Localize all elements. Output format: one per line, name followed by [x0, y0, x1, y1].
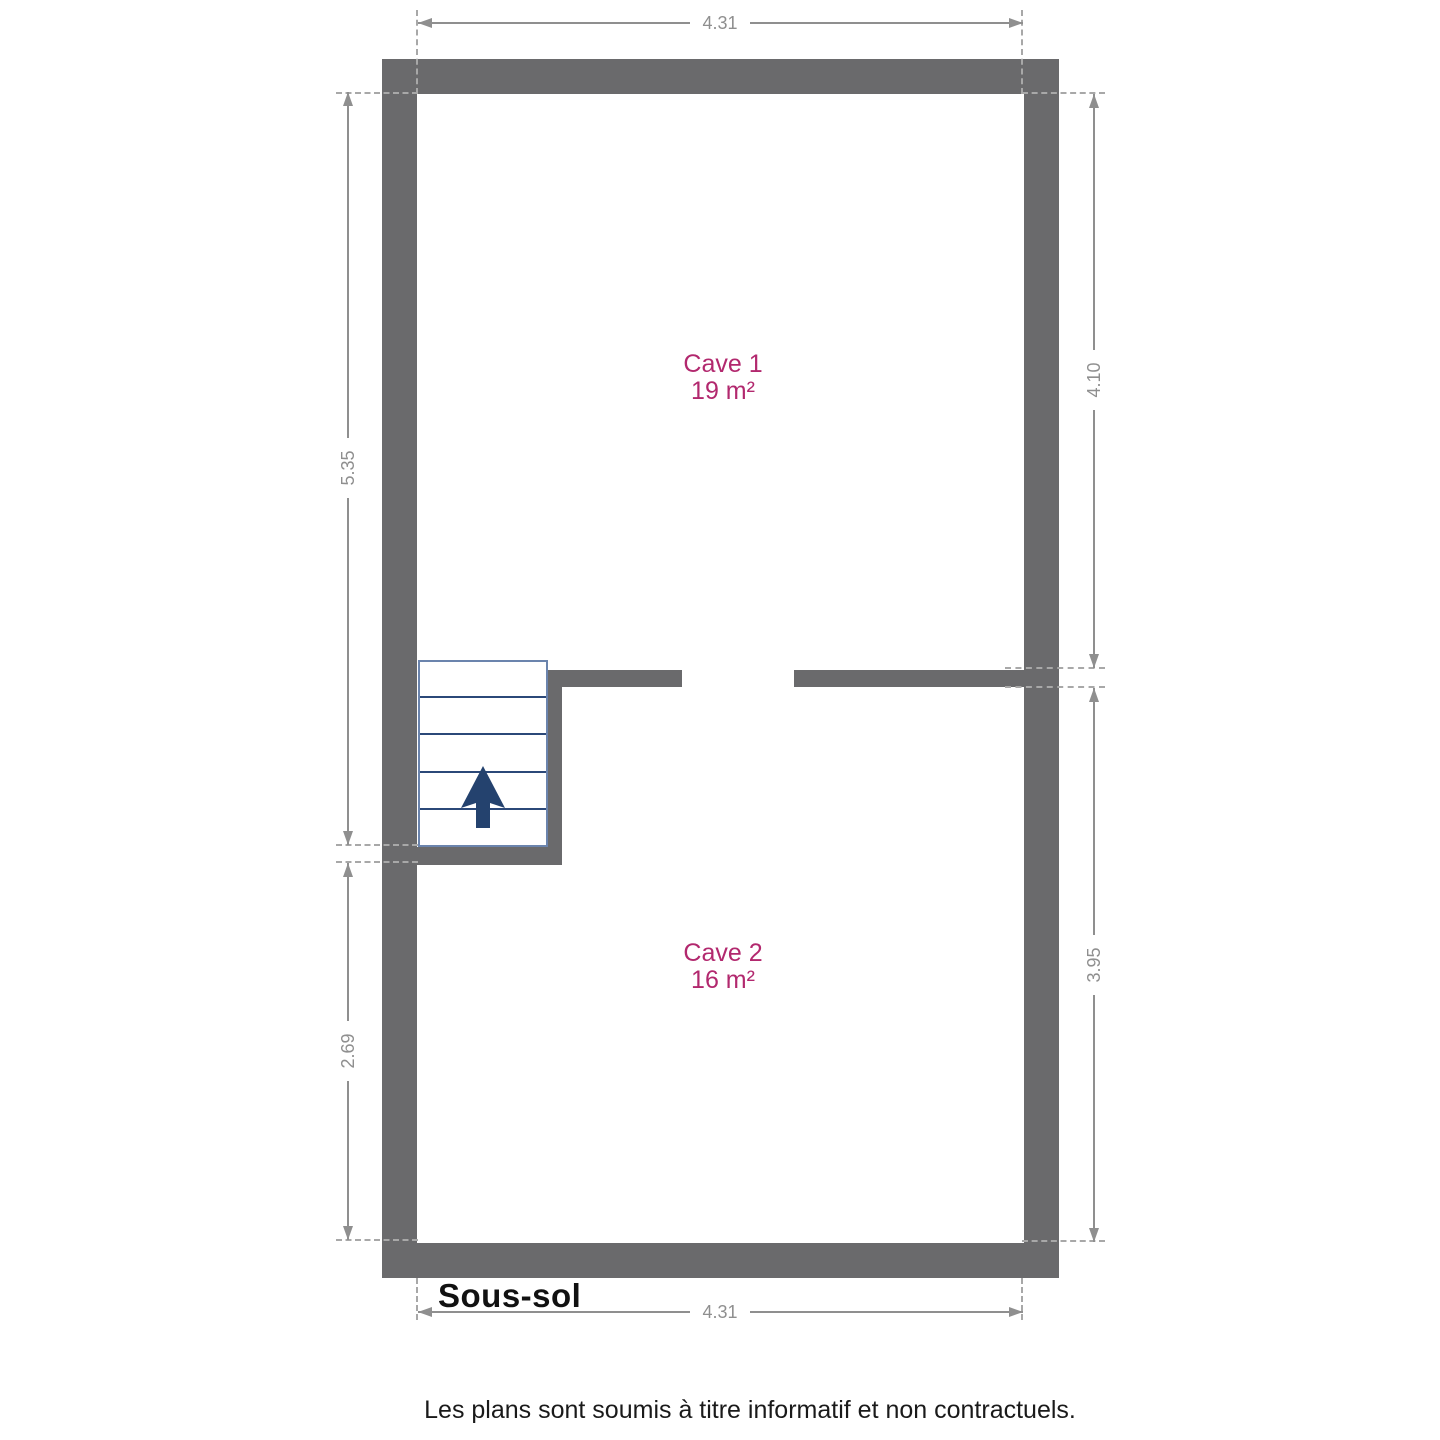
dimension-label-right-lower: 3.95 — [1081, 935, 1107, 995]
room-area: 16 m² — [623, 967, 823, 994]
wall-stair-side — [548, 670, 562, 865]
wall-divider-right — [794, 670, 1024, 687]
dimension-arrow — [1089, 654, 1099, 668]
floor-title: Sous-sol — [438, 1277, 581, 1315]
dimension-arrow — [418, 18, 432, 28]
stairs-up-arrow-icon — [455, 764, 511, 830]
disclaimer-note: Les plans sont soumis à titre informatif… — [375, 1396, 1125, 1425]
dimension-arrow — [1089, 94, 1099, 108]
stair-tread-line — [420, 696, 546, 698]
room-label-cave-2: Cave 2 16 m² — [623, 940, 823, 994]
wall-top — [382, 59, 1059, 94]
room-label-cave-1: Cave 1 19 m² — [623, 351, 823, 405]
wall-left — [382, 59, 417, 1278]
dimension-arrow — [343, 863, 353, 877]
dimension-arrow — [1009, 18, 1023, 28]
wall-stair-bottom — [417, 847, 562, 865]
dimension-label-left-lower: 2.69 — [335, 1021, 361, 1081]
room-area: 19 m² — [623, 378, 823, 405]
room-name: Cave 2 — [623, 940, 823, 967]
dimension-label-left-upper: 5.35 — [335, 438, 361, 498]
dimension-label-right-upper: 4.10 — [1081, 350, 1107, 410]
dimension-arrow — [1089, 1228, 1099, 1242]
stair-tread-line — [420, 733, 546, 735]
room-name: Cave 1 — [623, 351, 823, 378]
dimension-arrow — [418, 1307, 432, 1317]
dimension-arrow — [1009, 1307, 1023, 1317]
dimension-arrow — [343, 92, 353, 106]
dimension-arrow — [343, 1226, 353, 1240]
wall-divider-left — [548, 670, 682, 687]
wall-bottom — [382, 1243, 1059, 1278]
dimension-label-top: 4.31 — [690, 10, 750, 36]
dimension-arrow — [343, 831, 353, 845]
dimension-arrow — [1089, 688, 1099, 702]
dimension-label-bottom: 4.31 — [690, 1299, 750, 1325]
